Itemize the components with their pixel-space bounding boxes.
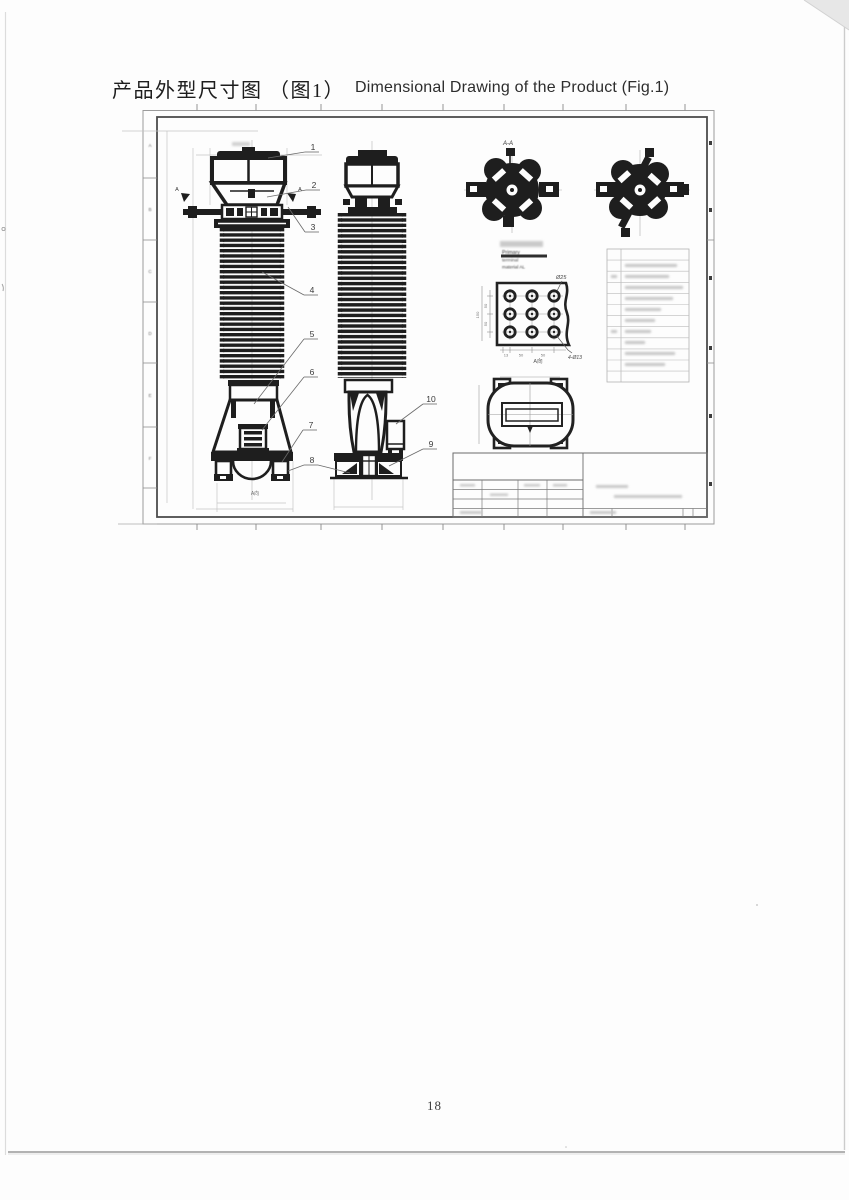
- callout-9: 9: [429, 439, 434, 449]
- dim-bottom-1: 13: [504, 353, 509, 358]
- dim-bottom-3: 50: [541, 353, 546, 358]
- technical-drawing-sheet: A B C D E F: [0, 0, 849, 1200]
- note-line-2: terminal: [502, 258, 518, 263]
- view-label-front-bottom: A向: [251, 490, 259, 497]
- callout-3: 3: [311, 222, 316, 232]
- section-marker-a-right: A: [298, 187, 302, 193]
- dim-left-total: 150: [475, 311, 480, 318]
- dim-left-1: 50: [483, 303, 488, 308]
- callout-8: 8: [310, 455, 315, 465]
- section-view-aa: A-A: [464, 141, 562, 233]
- callout-1: 1: [311, 142, 316, 152]
- callout-4: 4: [310, 285, 315, 295]
- hole-diameter-label: Ø25: [555, 275, 567, 281]
- plate-view-label: A向: [533, 357, 542, 365]
- callout-10: 10: [426, 394, 436, 404]
- zone-letter: D: [148, 331, 152, 336]
- terminal-plate-view: Ø25 4-Ø13 50 50 150 13 50 50 A向: [475, 275, 582, 365]
- dim-left-2: 50: [483, 321, 488, 326]
- zone-letter: A: [148, 143, 152, 148]
- side-view: [330, 150, 408, 478]
- section-marker-a-left: A: [175, 187, 179, 193]
- zone-letter: C: [148, 269, 152, 274]
- callout-5: 5: [310, 329, 315, 339]
- parts-table: [607, 249, 689, 382]
- zone-letter: B: [148, 207, 151, 212]
- note-line-3: material AL: [502, 265, 525, 270]
- page-number: 18: [427, 1098, 442, 1114]
- zone-letter: F: [149, 456, 152, 461]
- scan-artifacts: [2, 0, 849, 1155]
- hole-count-label: 4-Ø13: [568, 355, 582, 361]
- section-label-aa: A-A: [502, 141, 513, 147]
- callout-2: 2: [312, 180, 317, 190]
- zone-letter: E: [148, 393, 151, 398]
- callout-7: 7: [309, 420, 314, 430]
- scanned-page: 产品外型尺寸图 （图1） Dimensional Drawing of the …: [0, 0, 849, 1200]
- dim-bottom-2: 50: [519, 353, 524, 358]
- base-bottom-view: [479, 377, 573, 448]
- top-view-rosette: [594, 148, 690, 237]
- material-note: Primary terminal material AL: [500, 241, 547, 270]
- front-view: [181, 147, 321, 481]
- title-block: [453, 453, 707, 517]
- callout-6: 6: [310, 367, 315, 377]
